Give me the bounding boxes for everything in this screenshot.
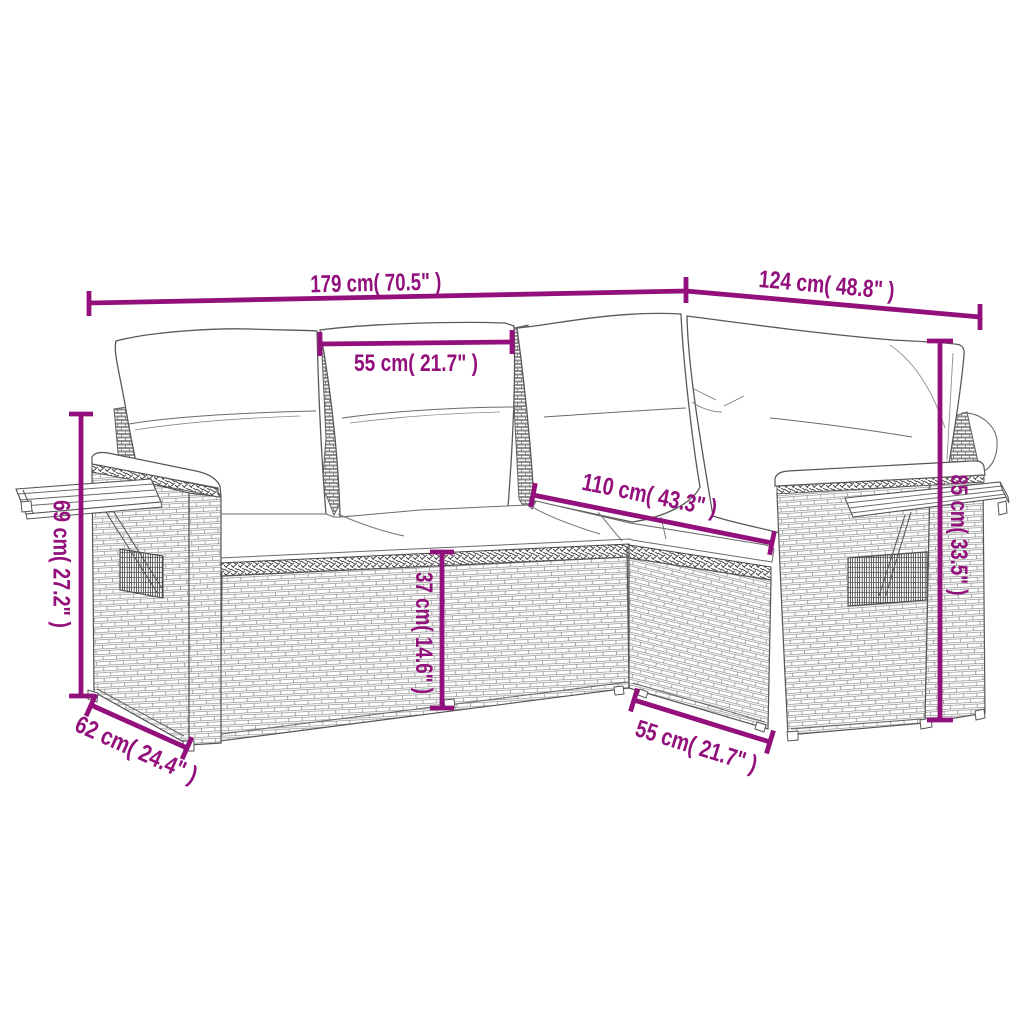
svg-text:69 cm( 27.2" ): 69 cm( 27.2" ) (48, 500, 75, 628)
svg-text:55 cm( 21.7" ): 55 cm( 21.7" ) (354, 350, 478, 377)
svg-text:37 cm( 14.6" ): 37 cm( 14.6" ) (410, 572, 437, 694)
svg-text:85 cm( 33.5" ): 85 cm( 33.5" ) (945, 475, 972, 596)
svg-text:179 cm( 70.5" ): 179 cm( 70.5" ) (310, 269, 442, 299)
